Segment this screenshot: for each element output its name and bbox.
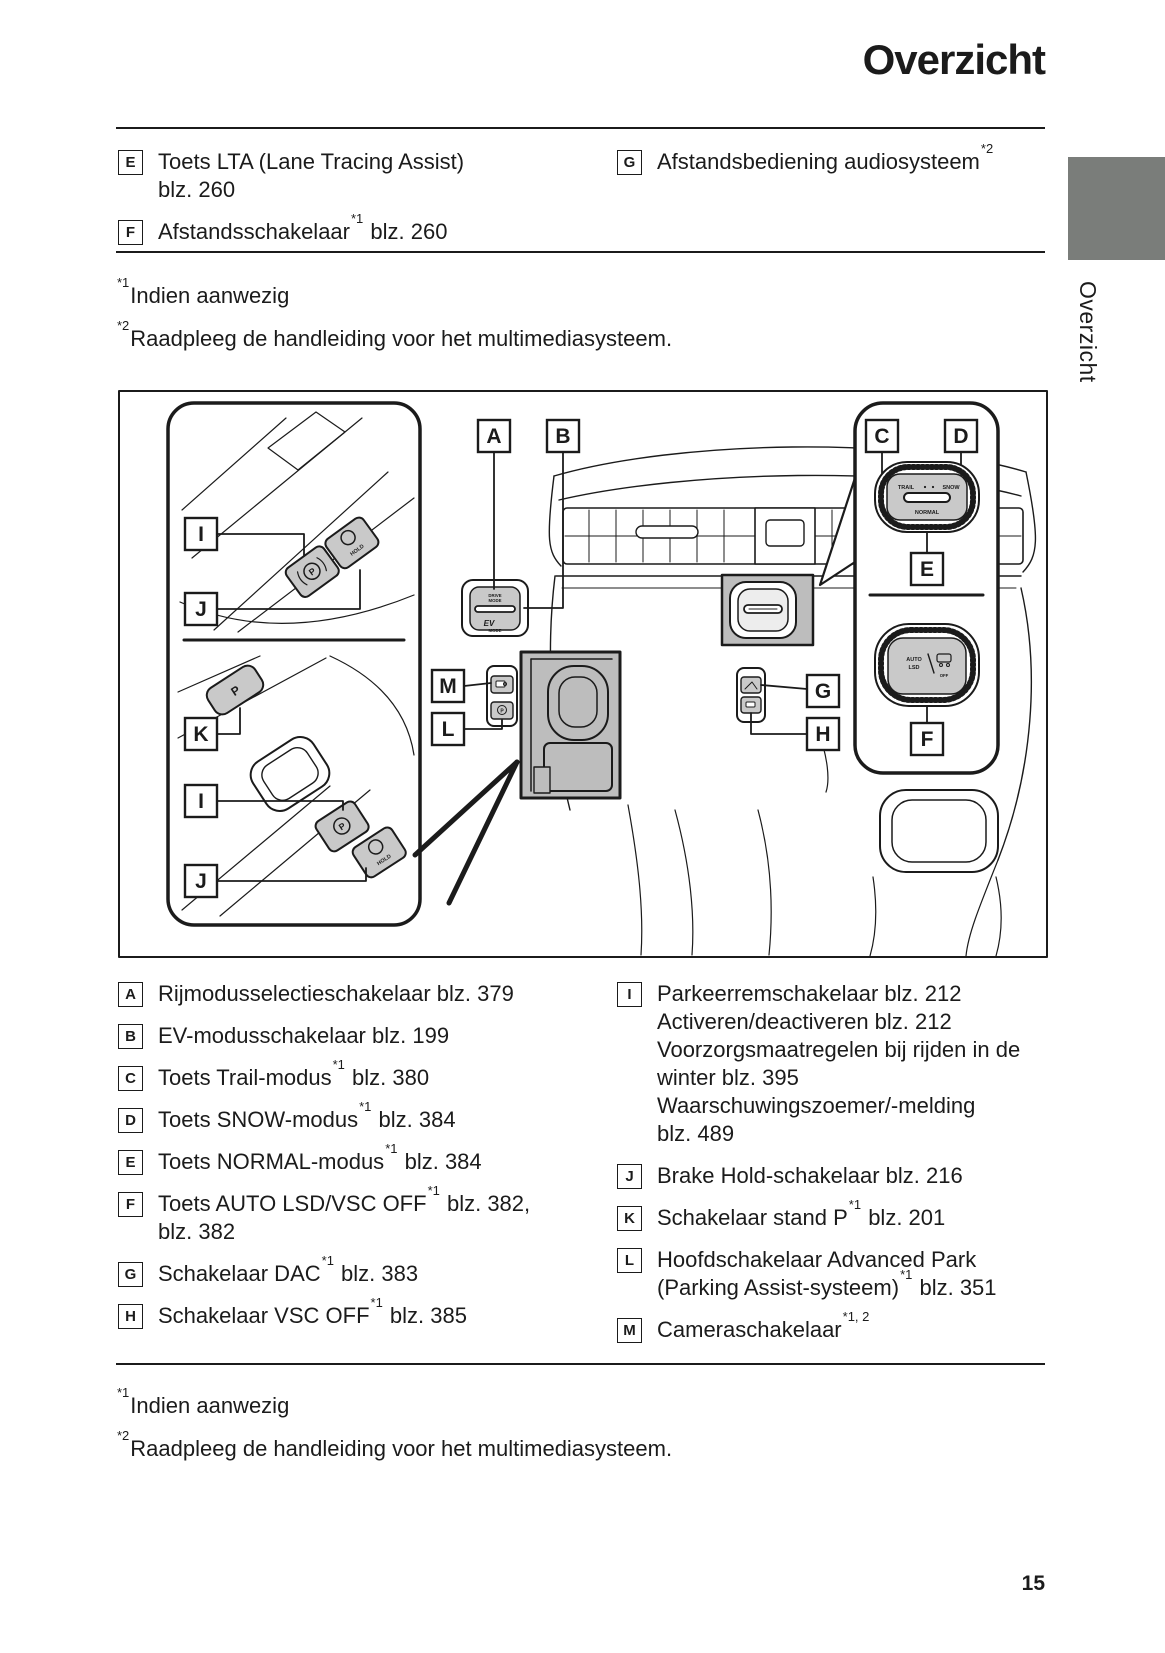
auto-lsd-vsc-off-button: AUTO LSD OFF xyxy=(875,624,979,706)
drive-mode-dial-slot xyxy=(475,606,515,612)
callout-key-J: J xyxy=(617,1164,642,1189)
page-number: 15 xyxy=(116,1572,1045,1596)
callout-B: B xyxy=(547,420,579,452)
callout-key-H: H xyxy=(118,1304,143,1329)
callout-key-I: I xyxy=(617,982,642,1007)
legend-item-E: E Toets NORMAL-modus*1 blz. 384 xyxy=(118,1148,588,1176)
left-inset-panel: P HOLD I J P xyxy=(168,403,420,925)
camera-park-switch-panel: P xyxy=(487,666,517,726)
callout-M: M xyxy=(432,670,464,702)
svg-text:AUTO: AUTO xyxy=(906,657,922,663)
svg-text:M: M xyxy=(439,675,457,698)
divider-bottom xyxy=(116,1363,1045,1365)
ev-mode-button-label: EV xyxy=(484,619,495,628)
callout-J-bottom: J xyxy=(185,865,217,897)
drive-mode-select-dial: TRAIL SNOW NORMAL xyxy=(875,462,979,532)
legend-item-D: D Toets SNOW-modus*1 blz. 384 xyxy=(118,1106,588,1134)
legend-item-A: A Rijmodusselectieschakelaar blz. 379 xyxy=(118,980,588,1008)
diagram-svg: P HOLD I J P xyxy=(118,390,1048,958)
callout-I-top: I xyxy=(185,518,217,550)
callout-key-F: F xyxy=(118,1192,143,1217)
snow-mode-label: SNOW xyxy=(942,485,960,491)
legend-item-G: G Schakelaar DAC*1 blz. 383 xyxy=(118,1260,588,1288)
svg-text:I: I xyxy=(198,790,204,813)
svg-text:MODE: MODE xyxy=(489,598,502,603)
callout-key-C: C xyxy=(118,1066,143,1091)
legend-item-H: H Schakelaar VSC OFF*1 blz. 385 xyxy=(118,1302,588,1330)
normal-mode-label: NORMAL xyxy=(915,510,940,516)
callout-I-bottom: I xyxy=(185,785,217,817)
legend-item-E-lta: E Toets LTA (Lane Tracing Assist)blz. 26… xyxy=(118,148,588,204)
svg-text:OFF: OFF xyxy=(940,673,949,678)
callout-key-E: E xyxy=(118,150,143,175)
callout-key-M: M xyxy=(617,1318,642,1343)
trail-mode-label: TRAIL xyxy=(898,485,915,491)
footnotes-bottom: *1Indien aanwezig *2Raadpleeg de handlei… xyxy=(116,1392,672,1478)
console-overview-diagram: P HOLD I J P xyxy=(118,390,1048,958)
callout-L: L xyxy=(432,713,464,745)
callout-key-B: B xyxy=(118,1024,143,1049)
divider-top-legend xyxy=(116,251,1045,253)
svg-text:I: I xyxy=(198,523,204,546)
dac-switch-button xyxy=(741,677,761,693)
legend-item-J: J Brake Hold-schakelaar blz. 216 xyxy=(617,1162,1045,1190)
callout-key-G: G xyxy=(118,1262,143,1287)
legend-item-K: K Schakelaar stand P*1 blz. 201 xyxy=(617,1204,1045,1232)
footnote-1: *1Indien aanwezig xyxy=(116,1392,672,1420)
svg-text:LSD: LSD xyxy=(909,665,920,671)
manual-page: Overzicht E Toets LTA (Lane Tracing Assi… xyxy=(0,0,1165,1653)
legend-item-F: F Toets AUTO LSD/VSC OFF*1 blz. 382,blz.… xyxy=(118,1190,588,1246)
svg-text:E: E xyxy=(920,558,934,581)
legend-item-F-afstandsschakelaar: F Afstandsschakelaar*1 blz. 260 xyxy=(118,218,588,246)
legend-item-I: I Parkeerremschakelaar blz. 212Activeren… xyxy=(617,980,1045,1148)
callout-D: D xyxy=(945,420,977,452)
svg-text:B: B xyxy=(555,425,570,448)
chapter-tab-label: Overzicht xyxy=(1074,281,1101,383)
footnote-2: *2Raadpleeg de handleiding voor het mult… xyxy=(116,325,672,353)
callout-key-K: K xyxy=(617,1206,642,1231)
callout-key-A: A xyxy=(118,982,143,1007)
callout-key-E: E xyxy=(118,1150,143,1175)
svg-text:A: A xyxy=(486,425,501,448)
divider-top xyxy=(116,127,1045,129)
legend-item-B: B EV-modusschakelaar blz. 199 xyxy=(118,1022,588,1050)
callout-key-L: L xyxy=(617,1248,642,1273)
legend-item-C: C Toets Trail-modus*1 blz. 380 xyxy=(118,1064,588,1092)
bottom-legend-left-column: A Rijmodusselectieschakelaar blz. 379 B … xyxy=(118,980,588,1344)
svg-text:L: L xyxy=(442,718,455,741)
callout-E: E xyxy=(911,553,943,585)
svg-text:F: F xyxy=(921,728,934,751)
page-title: Overzicht xyxy=(116,36,1045,84)
callout-J-top: J xyxy=(185,593,217,625)
callout-H: H xyxy=(807,718,839,750)
top-legend-right-column: G Afstandsbediening audiosysteem*2 xyxy=(617,148,1045,190)
callout-C: C xyxy=(866,420,898,452)
callout-key-F: F xyxy=(118,220,143,245)
dial-slot xyxy=(904,493,950,502)
svg-text:H: H xyxy=(815,723,830,746)
legend-item-G-audio: G Afstandsbediening audiosysteem*2 xyxy=(617,148,1045,176)
legend-item-M: M Cameraschakelaar*1, 2 xyxy=(617,1316,1045,1344)
footnote-1: *1Indien aanwezig xyxy=(116,282,672,310)
callout-K: K xyxy=(185,718,217,750)
callout-A: A xyxy=(478,420,510,452)
svg-text:K: K xyxy=(193,723,208,746)
callout-F: F xyxy=(911,723,943,755)
shifter-highlight xyxy=(521,652,620,798)
callout-G: G xyxy=(807,675,839,707)
svg-text:J: J xyxy=(195,870,207,893)
svg-text:MODE: MODE xyxy=(489,628,502,633)
right-inset-panel: C D TRAIL SNOW NORMAL E xyxy=(855,403,998,773)
shift-base xyxy=(544,743,612,791)
svg-text:J: J xyxy=(195,598,207,621)
vsc-off-icon xyxy=(746,702,755,707)
top-legend-left-column: E Toets LTA (Lane Tracing Assist)blz. 26… xyxy=(118,148,588,260)
drive-mode-ev-cluster: DRIVE MODE EV MODE xyxy=(462,580,528,636)
audio-remote-highlight xyxy=(722,575,813,645)
legend-item-L: L Hoofdschakelaar Advanced Park(Parking … xyxy=(617,1246,1045,1302)
svg-text:C: C xyxy=(874,425,889,448)
footnotes-top: *1Indien aanwezig *2Raadpleeg de handlei… xyxy=(116,282,672,368)
cup-holder-console xyxy=(880,790,998,872)
callout-key-D: D xyxy=(118,1108,143,1133)
svg-text:D: D xyxy=(953,425,968,448)
callout-key-G: G xyxy=(617,150,642,175)
chapter-tab xyxy=(1068,157,1165,260)
bottom-legend-right-column: I Parkeerremschakelaar blz. 212Activeren… xyxy=(617,980,1045,1358)
svg-text:G: G xyxy=(815,680,831,703)
footnote-2: *2Raadpleeg de handleiding voor het mult… xyxy=(116,1435,672,1463)
